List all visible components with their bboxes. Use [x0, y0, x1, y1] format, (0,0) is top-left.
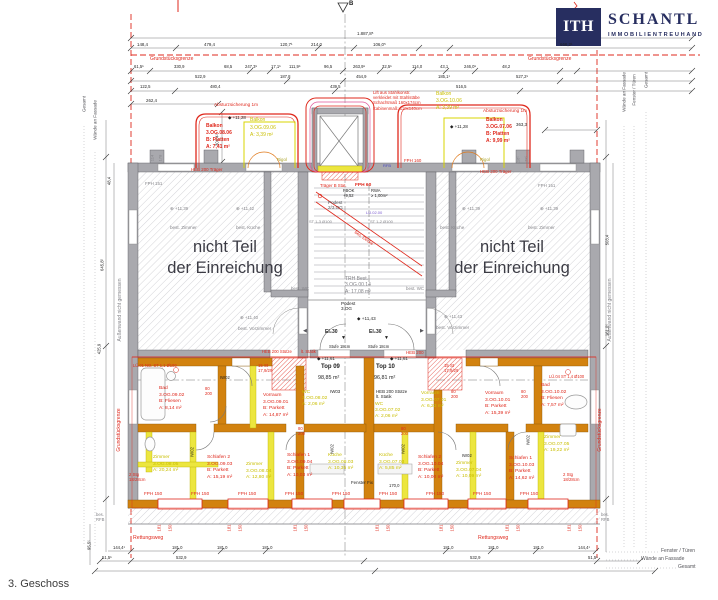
window-dim: 181 [228, 525, 233, 532]
room-label-old: Zimmer 3.OG.07.05 A: 19,22 m² [544, 435, 569, 455]
railing-note: Absturzsicherung 1m [214, 102, 258, 108]
level-marker: ⊕ +11,40 [240, 315, 258, 320]
dim: 43,1 [440, 65, 448, 70]
dim: 522,9 [195, 75, 205, 80]
dim: 645,8² [101, 259, 106, 271]
site-boundary-label: Grundstücksgrenze [598, 408, 604, 451]
site-boundary-label: Grundstücksgrenze [150, 57, 193, 63]
window-dim: 150 [169, 525, 174, 532]
dim: 178⁵ [525, 156, 530, 164]
section-marker-label: B [349, 1, 353, 8]
window-dim: 150 [387, 525, 392, 532]
room-label-balkon: Balkon 3.OG.10.06 A: 3,39 m² [436, 91, 462, 112]
dim: 516,5 [456, 85, 466, 90]
room-label-existing: best. Küche [236, 225, 260, 230]
beam-label: lt. Statik [301, 350, 316, 355]
level-marker: ◆ +11,43 [357, 316, 376, 321]
dim: 181,0 [488, 546, 498, 551]
room-label-old: Zimmer 3.OG.08.04 A: 12,80 m² [246, 462, 271, 482]
dim: 120,7¹ [280, 42, 292, 47]
door-dim: 80 200 [205, 386, 212, 396]
outer-wall-note: Außenwand nicht gemessen [118, 278, 124, 341]
dim: 51,5⁵ [588, 556, 598, 561]
site-boundary-label: Grundstücksgrenze [117, 408, 123, 451]
door-tag: EI₂30 [325, 330, 338, 336]
wall-tag: IW02 [527, 435, 532, 445]
window-tag: FPH 151 [145, 181, 162, 186]
lift-note: Lift aus Stahlkonstr. verkleidet mit Sta… [373, 90, 422, 111]
room-label-new: Vorraum 3.OG.09.01 B: Parkett A: 14,87 m… [263, 393, 288, 419]
dim: 187,8 [280, 75, 290, 80]
dim: 96,5 [324, 65, 332, 70]
door-tag: EI₂30 [369, 330, 382, 336]
dim: 144,4¹ [113, 546, 125, 551]
dim: 48,4 [108, 177, 113, 185]
dim: 181,0 [443, 546, 453, 551]
level-marker: ◆ +11,61 [390, 356, 408, 361]
window-tag: Fenster Fix [351, 480, 373, 485]
level-marker: ⊕ +11,39 [540, 206, 558, 211]
door-dim: 80 200 [401, 426, 408, 436]
note: RFB [383, 164, 391, 169]
vent-note: LÜ.01 NO. ST 1,1 Ø100 [133, 364, 177, 369]
door-dim: 80 200 [521, 389, 528, 399]
stair-note: 2 Stg 18/28cm [563, 472, 579, 482]
window-dim: 150 [239, 525, 244, 532]
window-dim: 150 [517, 525, 522, 532]
window-tag: FPH 150 [520, 491, 538, 496]
room-label-existing: best. Zimmer [528, 225, 555, 230]
dim: 363,3 [516, 122, 527, 127]
window-tag: FPH 150 [473, 491, 491, 496]
room-label-new: Vorraum 3.OG.10.01 B: Parkett A: 15,39 m… [485, 391, 510, 417]
dim: 114 [151, 155, 156, 161]
dim: 527,2⁵ [516, 75, 528, 80]
vent-note: ST 1-2 Ø100 [370, 220, 393, 225]
wall-tag: IW02 [331, 444, 336, 454]
legend-waende: Wände an Fassade [621, 72, 626, 112]
dim: 122,5 [140, 85, 150, 90]
stair-note: 2 Stg 18/28cm [129, 472, 145, 482]
dim: 503,4 [606, 235, 611, 245]
dim: 116⁵ [517, 156, 522, 164]
room-label-old: Zimmer 3.OG.07.04 A: 10,09 m² [456, 461, 481, 481]
drain-label: Rigol [277, 157, 287, 162]
level-note: FBOK +9,52 [343, 189, 354, 199]
dim: 532,9 [470, 556, 480, 561]
level-marker: ◆ +11,28 [228, 115, 246, 120]
room-label-existing: best. Vorzimmer [436, 325, 469, 330]
room-label-existing: best. Zimmer [170, 225, 197, 230]
vent-note: LÜ.02.00 [366, 211, 382, 216]
room-label-new: Bad 3.OG.09.02 B: Fliesen A: 8,14 m² [159, 386, 184, 412]
level-marker: ⊕ +11,39 [170, 206, 188, 211]
dim: 666,2¹ [560, 42, 572, 47]
arrow-down-icon: ▼ [341, 336, 346, 342]
legend-fenster: Fenster / Türen [631, 74, 636, 105]
window-dim: 181 [294, 525, 299, 532]
window-tag: FPH 150 [285, 491, 303, 496]
arrow-right-icon: ▶ [420, 329, 424, 335]
column-label: HEB 200 Stütze lt. Statik [376, 389, 407, 399]
dim: 181,0 [262, 546, 272, 551]
level-marker: ◆ +11,61 [317, 356, 335, 361]
dim: 454,9 [356, 75, 366, 80]
dim: 148,4 [137, 42, 148, 47]
ceiling-note: bes. Decke [354, 230, 375, 247]
window-dim: 181 [440, 525, 445, 532]
dim: 425,9 [98, 344, 103, 354]
unit-label-top09: Top 09 [321, 364, 340, 371]
dim: 68,5 [224, 65, 232, 70]
window-dim: 181 [158, 525, 163, 532]
dim: 479,4 [204, 42, 215, 47]
room-label-new: Schlafen 2 3.OG.10.04 B: Parkett A: 10,0… [418, 455, 443, 481]
unit-area-top10: 96,81 m² [374, 375, 395, 381]
note: bes. RFB [96, 513, 104, 523]
window-tag: FPH 150 [238, 491, 256, 496]
stair-note: Stufe 18cm [368, 345, 389, 350]
dim: 106,0⁵ [373, 42, 386, 47]
dim: 111,9⁵ [289, 65, 301, 70]
room-label-old: Küche 3.OG.07.03 A: 5,85 m² [379, 453, 404, 473]
arrow-down-icon: ▼ [384, 336, 389, 342]
escape-route-label: Rettungsweg [133, 535, 163, 541]
escape-route-label: Rettungsweg [478, 535, 508, 541]
beam-label: HEB 200 Träger [480, 169, 511, 174]
dim: 181,0 [172, 546, 182, 551]
wall-tag: IW03 [330, 389, 340, 394]
room-label-existing: best. Küche [440, 225, 464, 230]
door-tag: FPH 60 [355, 183, 371, 189]
room-label-existing: best. Vorzimmer [238, 326, 271, 331]
dim: 114,0 [412, 65, 422, 70]
window-dim: 150 [305, 525, 310, 532]
room-label-old: Küche 3.OG.08.03 A: 10,35 m² [328, 453, 353, 473]
level-marker: ⊕ +11,42 [236, 206, 254, 211]
legend-gesamt: Gesamt [643, 72, 648, 88]
door-dim: 80 200 [298, 426, 305, 436]
door-dim: 80 200 [451, 389, 458, 399]
dim: 330,9 [174, 65, 184, 70]
room-label-new: Schlafen 1 3.OG.10.03 B: Parkett A: 14,6… [509, 456, 534, 482]
room-label-new: Schlafen 2 3.OG.09.03 B: Parkett A: 15,1… [207, 455, 232, 481]
arrow-left-icon: ◀ [303, 329, 307, 335]
window-dim: 181 [568, 525, 573, 532]
room-label-stairs: TRH Best. 3.OG.00.14 A: 17,08 m² [345, 276, 371, 295]
drain-label: Rigol [480, 157, 490, 162]
dim: 48,2 [502, 65, 510, 70]
annotation-layer: GrundstücksgrenzeGrundstücksgrenzeGrunds… [0, 0, 718, 600]
room-label-new: Bad 3.OG.10.02 B: Fliesen A: 7,57 m² [541, 383, 566, 409]
unit-area-top09: 98,85 m² [318, 375, 339, 381]
dim: 532,9 [176, 556, 186, 561]
dim: 61,5⁵ [134, 65, 144, 70]
dim: 17,1⁵ [271, 65, 281, 70]
dim: 32,5⁵ [382, 65, 392, 70]
dim: 246,0⁵ [464, 65, 476, 70]
window-dim: 181 [376, 525, 381, 532]
dim: 144,4¹ [578, 546, 590, 551]
window-tag: FPH 150 [191, 491, 209, 496]
dim: 51,5⁵ [102, 556, 112, 561]
dim: 181,0 [217, 546, 227, 551]
beam-label: HEB 200 Stütze [262, 350, 292, 355]
room-label-balkon: Balkon 3.OG.09.06 A: 3,39 m² [250, 117, 276, 140]
level-marker: ⊕ +11,39 [462, 206, 480, 211]
note: bes. RFB [601, 513, 609, 523]
legend-waende: Wände an Fassade [92, 100, 97, 140]
dim: 181,0 [533, 546, 543, 551]
landing-label: Podest 3.OG [341, 301, 355, 312]
window-dim: 150 [579, 525, 584, 532]
level-marker: ◆ +11,28 [450, 124, 468, 129]
dim: 480,4 [210, 85, 220, 90]
legend-gesamt: Gesamt [678, 565, 696, 571]
wall-tag: IW02 [402, 444, 407, 454]
dim: 185,1¹ [438, 75, 450, 80]
beam-label: HEB 200 [406, 350, 424, 355]
stair-note: Stufe 18cm [329, 345, 350, 350]
dim: 263,9⁵ [353, 65, 365, 70]
dim: 170,0 [389, 484, 399, 489]
window-tag: FPH 150 [426, 491, 444, 496]
room-label-existing: best. WC [406, 286, 424, 291]
room-label-old: Vorraum 3.OG.07.01 A: 6,23 m² [421, 391, 446, 411]
dim: 247,3⁵ [245, 65, 257, 70]
unit-label-top10: Top 10 [376, 364, 395, 371]
wall-tag: IW02 [462, 454, 472, 459]
level-marker: ⊕ +11,43 [444, 314, 462, 319]
room-label-old: WC 3.OG.07.02 A: 2,06 m² [375, 402, 400, 420]
room-label-balkon: Balkon 3.OG.08.06 B: Platten A: 7,41 m² [206, 123, 232, 151]
landing-label: Podest 2/3.OG [328, 200, 343, 211]
room-label-new: Schlafen 1 3.OG.09.04 B: Parkett A: 10,0… [287, 453, 312, 479]
stair-note: 15 St 17,9/29 [444, 363, 458, 373]
room-label-existing: best. WC [291, 286, 309, 291]
legend-waende: Wände an Fassade [641, 557, 684, 563]
dim: 439,5 [330, 85, 340, 90]
wall-tag: IW02 [220, 376, 230, 381]
dim: 1.887,8⁵ [357, 31, 373, 36]
smoke-vent-note: RWA ≥ 1,00m² [371, 189, 388, 199]
dim: 214,0 [311, 42, 322, 47]
room-label-old: WC 3.OG.08.02 A: 2,06 m² [302, 390, 327, 408]
legend-fenster: Fenster / Türen [661, 549, 695, 555]
legend-gesamt: Gesamt [81, 96, 86, 112]
window-tag: FPH 150 [144, 491, 162, 496]
wall-tag: IW02 [191, 447, 196, 457]
dim: 178 [159, 155, 164, 162]
window-tag: FPH 150 [379, 491, 397, 496]
dim: 95,5⁵ [88, 540, 93, 550]
vent-note: LÜ.04 ST 1,4 Ø100 [549, 375, 584, 380]
dim: 161,0⁵ [606, 324, 611, 336]
window-dim: 150 [451, 525, 456, 532]
door-tag: FPH 160 [404, 158, 421, 163]
railing-note: Absturzsicherung 1m [483, 108, 527, 114]
window-dim: 181 [506, 525, 511, 532]
beam-label: HEB 200 Träger [191, 167, 222, 172]
window-tag: FPH 151 [538, 183, 555, 188]
dim: 262,4 [146, 98, 157, 103]
vent-note: ST 1-3 Ø100 [309, 220, 332, 225]
floorplan-canvas: nicht Teil der Einreichung nicht Teil de… [0, 0, 718, 600]
window-tag: FPH 150 [332, 491, 350, 496]
stair-note: 15 St 17,9/29 [258, 363, 272, 373]
room-label-old: Zimmer 3.OG.08.05 A: 20,24 m² [153, 455, 178, 475]
room-label-balkon: Balkon 3.OG.07.06 B: Platten A: 9,99 m² [486, 117, 512, 145]
site-boundary-label: Grundstücksgrenze [528, 57, 571, 63]
